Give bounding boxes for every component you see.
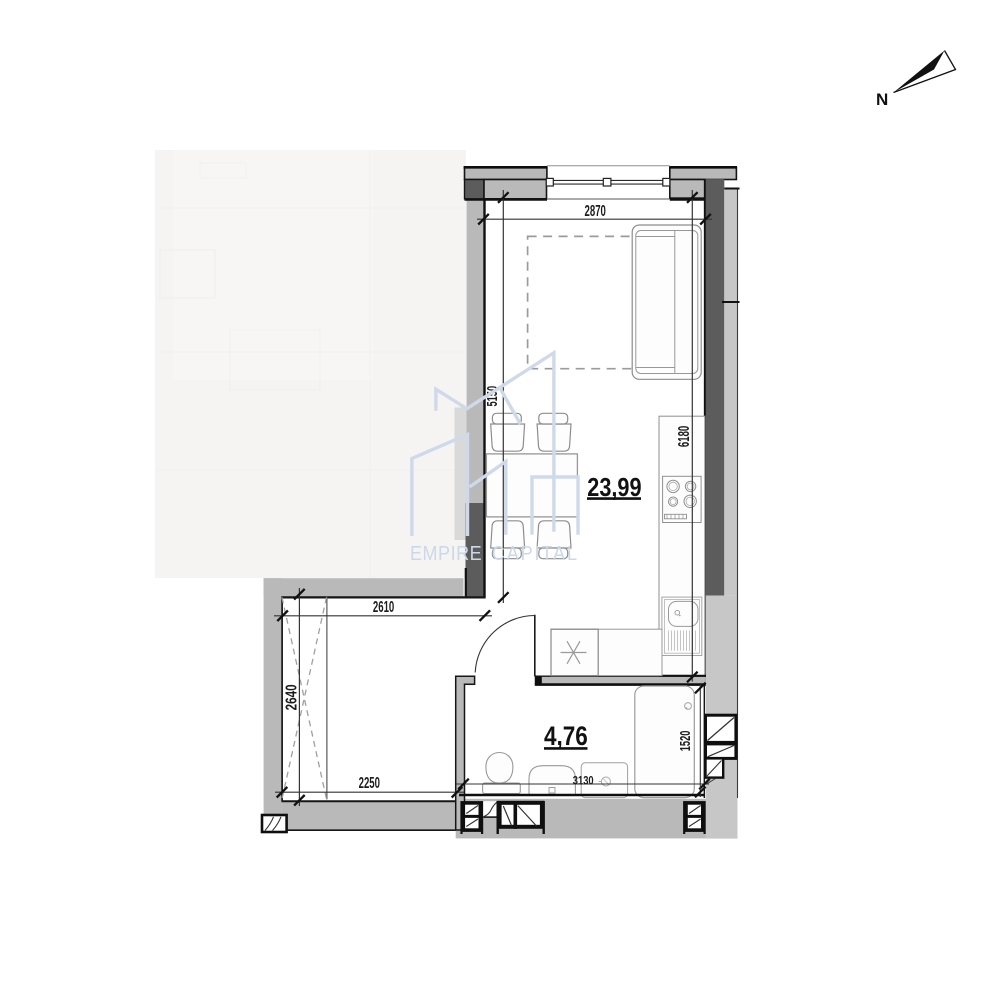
svg-text:2870: 2870	[585, 201, 606, 219]
svg-text:6180: 6180	[675, 426, 693, 447]
svg-text:2610: 2610	[373, 597, 394, 615]
svg-text:2250: 2250	[359, 774, 380, 792]
svg-text:2640: 2640	[283, 684, 300, 710]
svg-text:CAPITAL: CAPITAL	[492, 542, 579, 565]
svg-text:3130: 3130	[573, 774, 594, 787]
svg-text:N: N	[876, 90, 888, 109]
svg-text:1520: 1520	[677, 731, 694, 752]
svg-text:EMPIRE: EMPIRE	[410, 542, 482, 565]
